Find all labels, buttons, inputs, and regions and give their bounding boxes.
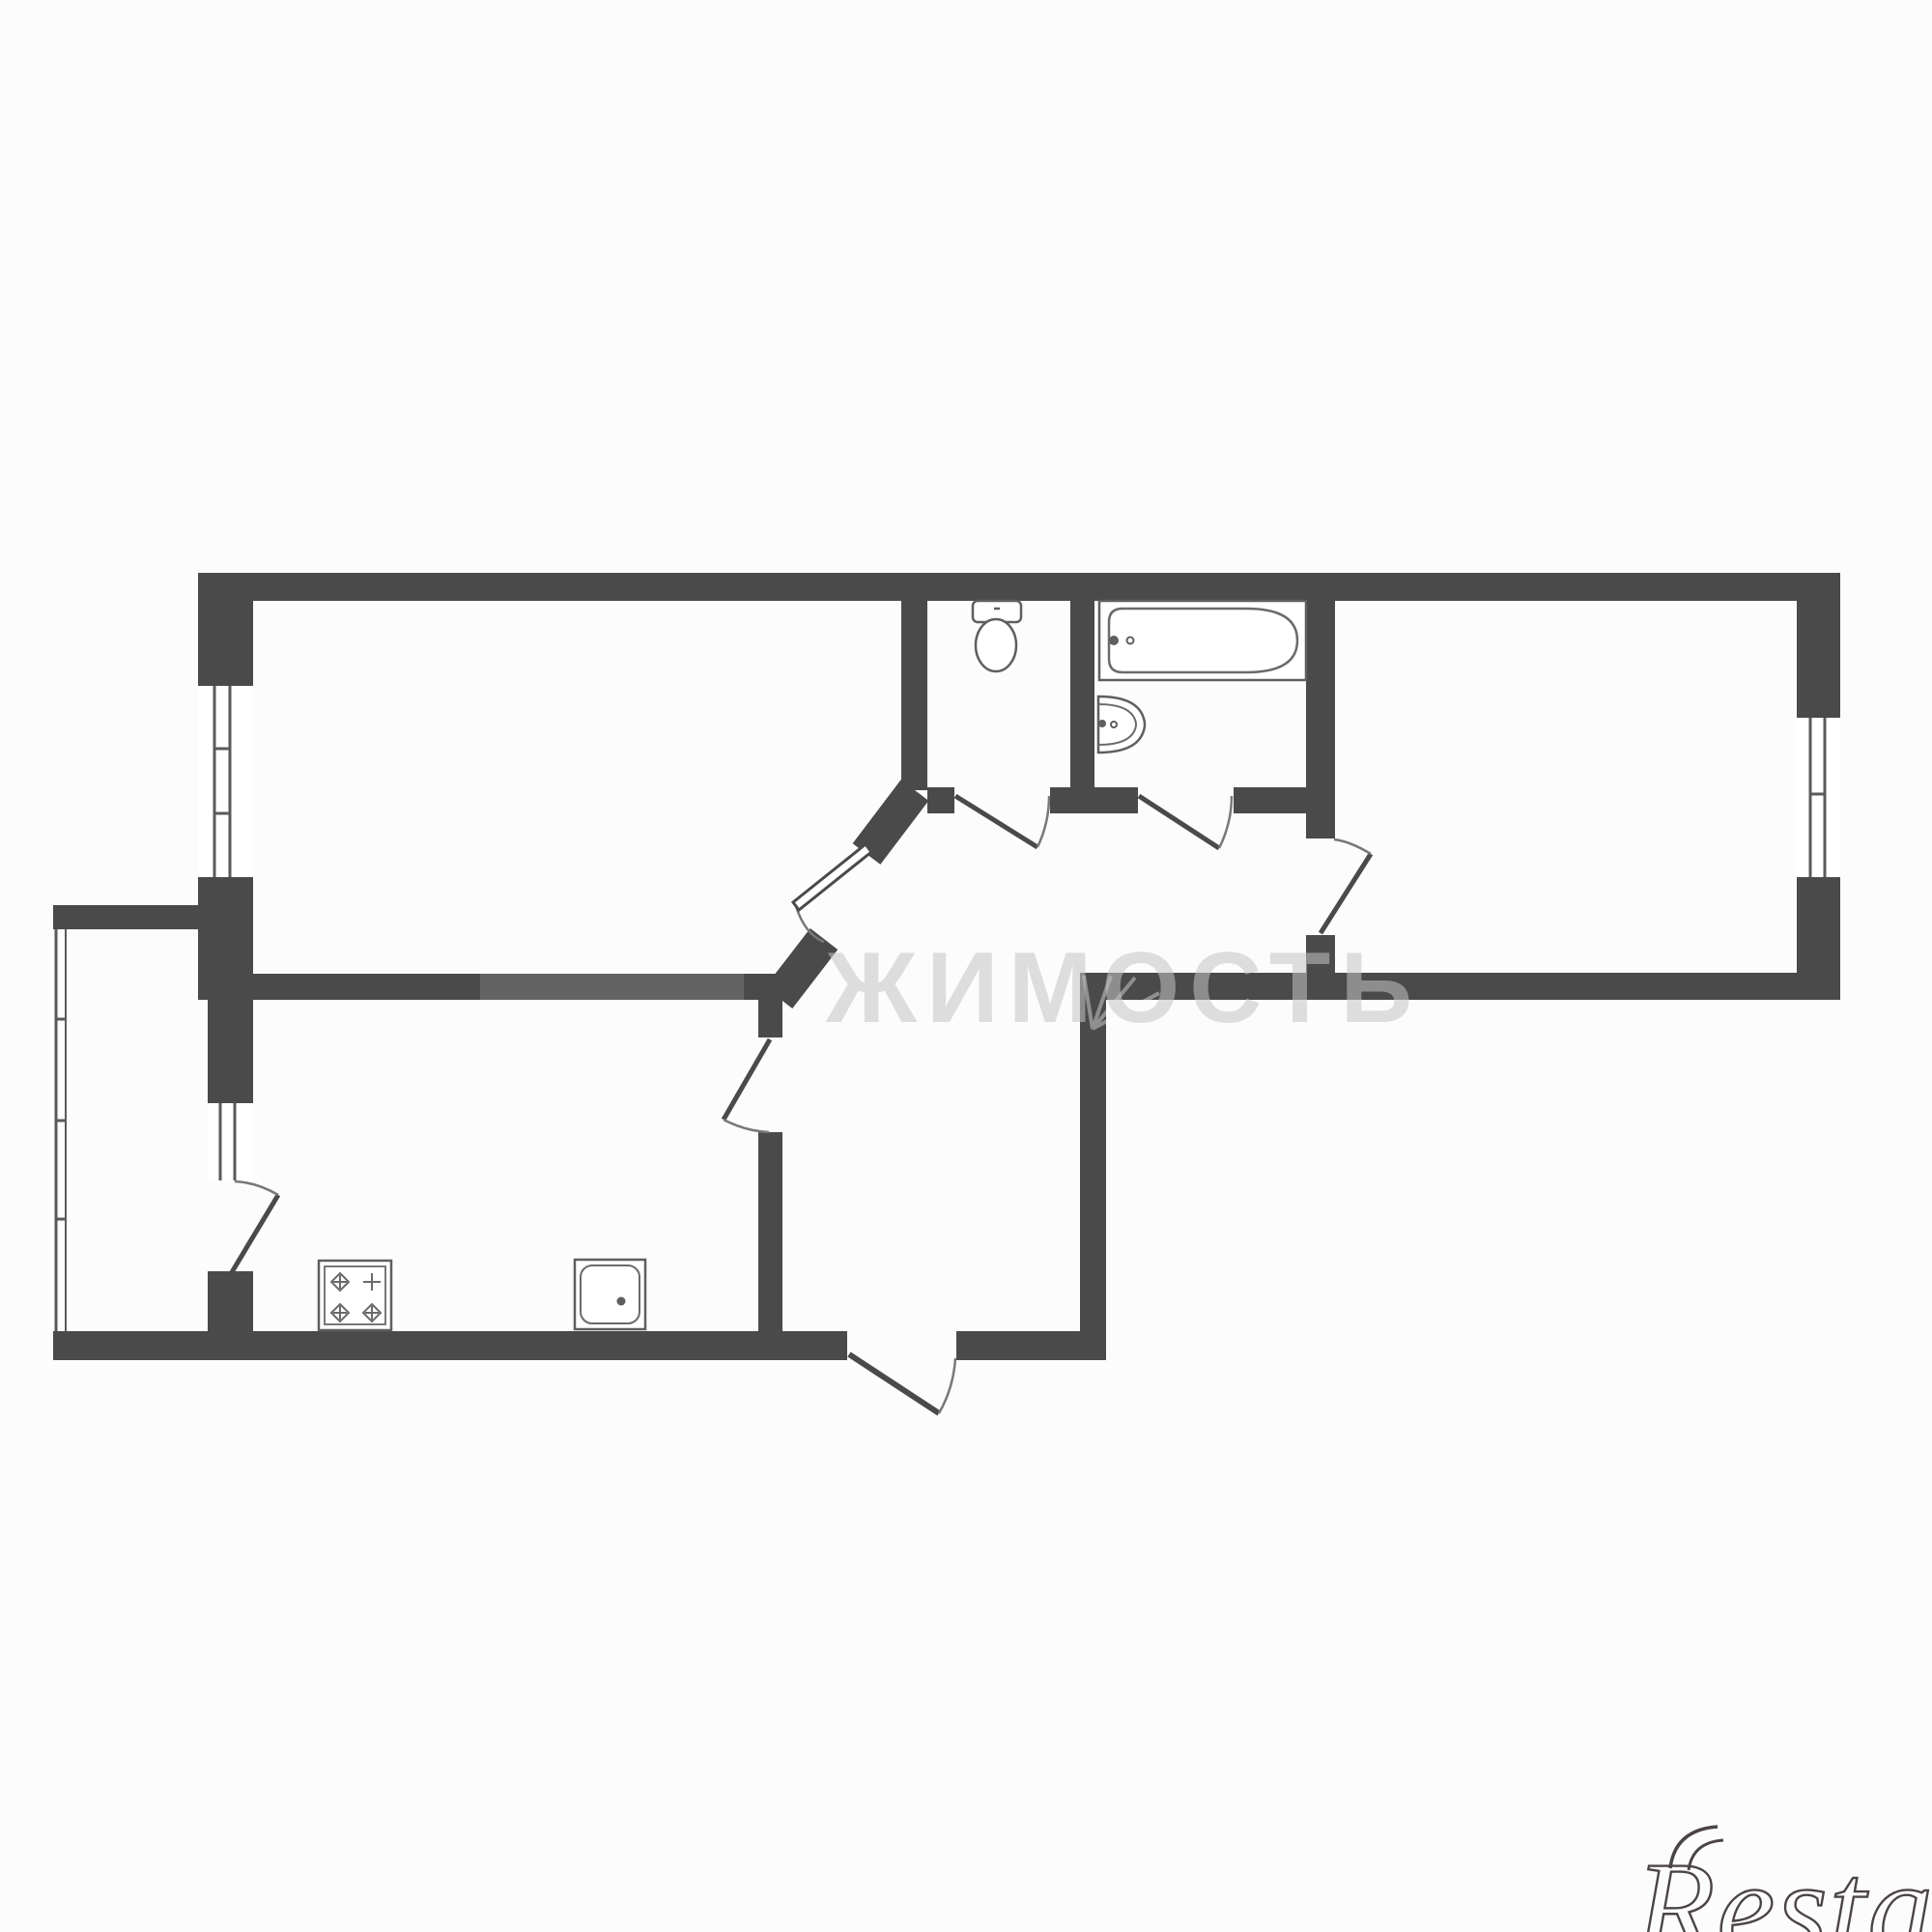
wash-basin-icon — [1098, 696, 1145, 753]
wall-top — [198, 573, 1840, 601]
door-wc — [955, 796, 1049, 847]
wall-diagonal-upper — [867, 790, 915, 854]
wall-wc-south-b — [1050, 787, 1138, 813]
brand-logo-text: Restate — [1634, 1836, 1932, 1932]
wall-left-upper — [198, 573, 253, 686]
watermark-band — [480, 974, 744, 1000]
door-kitchen — [724, 1039, 770, 1132]
brand-logo: Restate — [1634, 1827, 1932, 1932]
doors — [232, 796, 1371, 1413]
wall-bath-south — [1234, 787, 1306, 813]
wall-wc-south-a — [927, 787, 954, 813]
toilet-icon — [973, 601, 1021, 671]
balcony-glazing — [56, 929, 66, 1331]
door-entrance — [849, 1354, 955, 1413]
door-rightroom — [1321, 839, 1371, 933]
kitchen-sink-icon — [575, 1260, 645, 1329]
door-room1 — [793, 844, 871, 942]
window-kitchen-left — [208, 1103, 253, 1180]
door-bathroom — [1139, 796, 1232, 848]
floor-plan-drawing: ЖИМОСТЬ Restate — [0, 0, 1932, 1932]
watermarks: ЖИМОСТЬ Restate — [480, 932, 1932, 1932]
wall-bath-east — [1306, 601, 1335, 838]
door-balcony — [232, 1181, 278, 1272]
wall-kitchen-west-lower — [208, 1271, 253, 1335]
wall-kitchen-east-lower — [758, 1132, 782, 1335]
wall-wc-bath-divider — [1070, 601, 1094, 813]
window-room1-left — [198, 686, 253, 877]
wall-room1-wc — [901, 601, 927, 790]
wall-right-upper — [1797, 573, 1840, 718]
floor-plan-page: ЖИМОСТЬ Restate — [0, 0, 1932, 1932]
window-rightroom-right — [1797, 718, 1840, 877]
bathtub-icon — [1099, 601, 1306, 680]
watermark-center-text: ЖИМОСТЬ — [825, 932, 1422, 1044]
stove-icon — [319, 1261, 391, 1330]
wall-diagonal-lower — [779, 939, 824, 998]
wall-bottom-left — [53, 1331, 847, 1360]
wall-balcony-top — [53, 905, 208, 929]
